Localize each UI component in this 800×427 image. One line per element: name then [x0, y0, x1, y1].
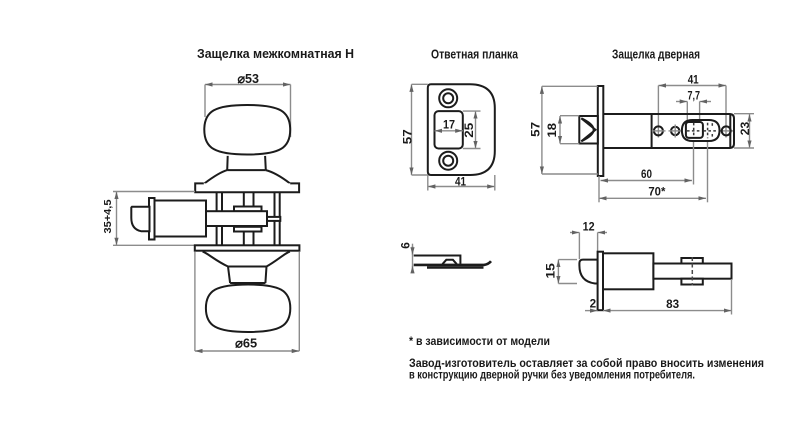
- svg-text:23: 23: [738, 121, 752, 135]
- svg-text:Защелка межкомнатная Н: Защелка межкомнатная Н: [197, 46, 354, 61]
- svg-text:Защелка дверная: Защелка дверная: [612, 47, 700, 62]
- svg-text:2: 2: [590, 296, 597, 310]
- svg-text:17: 17: [443, 118, 455, 132]
- svg-text:⌀65: ⌀65: [235, 336, 257, 351]
- svg-text:в конструкцию дверной ручки бе: в конструкцию дверной ручки без уведомле…: [409, 367, 695, 381]
- svg-text:⌀53: ⌀53: [238, 71, 260, 86]
- svg-text:12: 12: [583, 220, 595, 234]
- svg-text:15: 15: [544, 263, 558, 279]
- svg-text:57: 57: [528, 122, 542, 137]
- svg-text:83: 83: [666, 297, 679, 311]
- svg-text:7,7: 7,7: [688, 88, 701, 102]
- svg-text:* в зависимости от модели: * в зависимости от модели: [409, 334, 550, 348]
- svg-text:70*: 70*: [648, 184, 665, 198]
- svg-text:18: 18: [545, 123, 559, 138]
- svg-text:Ответная планка: Ответная планка: [431, 47, 519, 62]
- svg-text:25: 25: [462, 122, 476, 137]
- svg-text:6: 6: [398, 242, 412, 249]
- svg-text:41: 41: [688, 72, 699, 86]
- svg-text:57: 57: [401, 129, 415, 144]
- svg-text:60: 60: [641, 167, 652, 181]
- svg-text:35+4,5: 35+4,5: [103, 199, 114, 233]
- svg-text:41: 41: [455, 174, 466, 188]
